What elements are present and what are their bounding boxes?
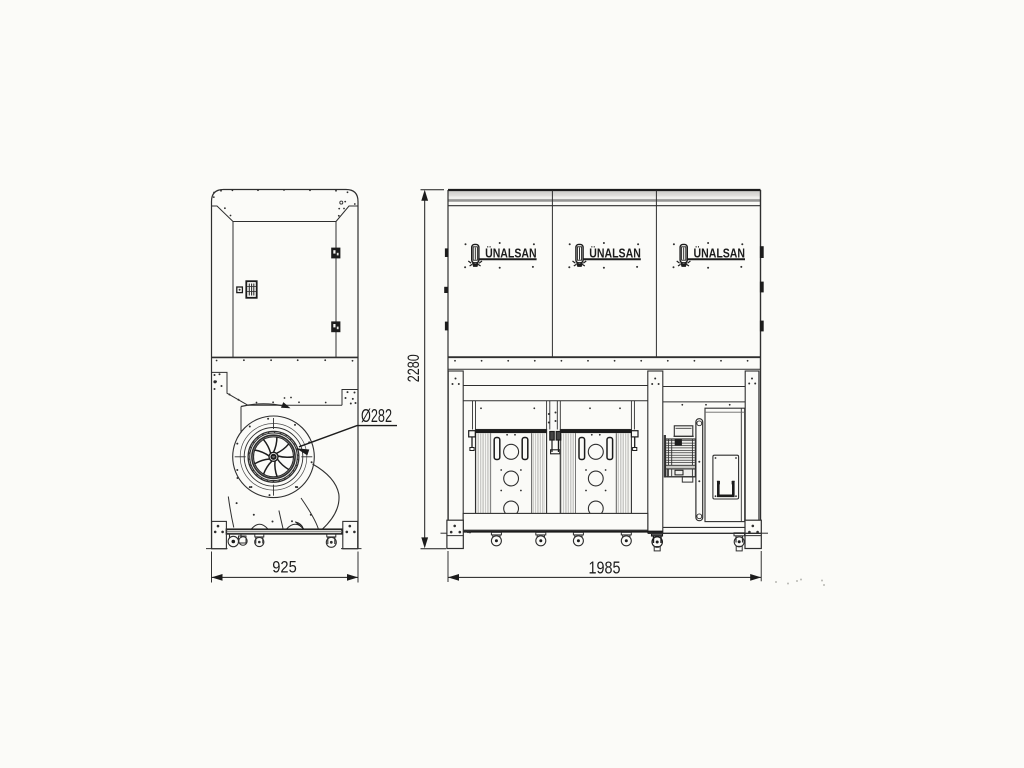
svg-text:ÜNALSAN: ÜNALSAN [485, 245, 536, 260]
svg-text:925: 925 [272, 558, 297, 576]
svg-text:1985: 1985 [589, 557, 621, 577]
svg-text:ÜNALSAN: ÜNALSAN [694, 245, 746, 260]
svg-text:2280: 2280 [404, 354, 423, 382]
svg-text:ÜNALSAN: ÜNALSAN [589, 245, 641, 260]
svg-text:Ø282: Ø282 [361, 405, 392, 426]
